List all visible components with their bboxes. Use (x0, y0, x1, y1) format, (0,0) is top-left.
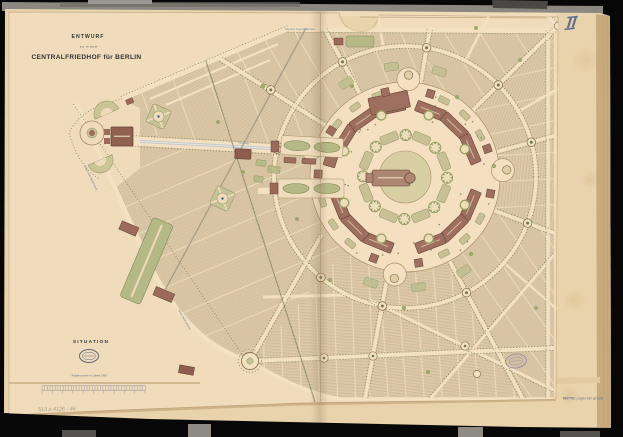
svg-text:MOTTO: Liegen tho’ ad acta: MOTTO: Liegen tho’ ad acta (563, 397, 603, 401)
